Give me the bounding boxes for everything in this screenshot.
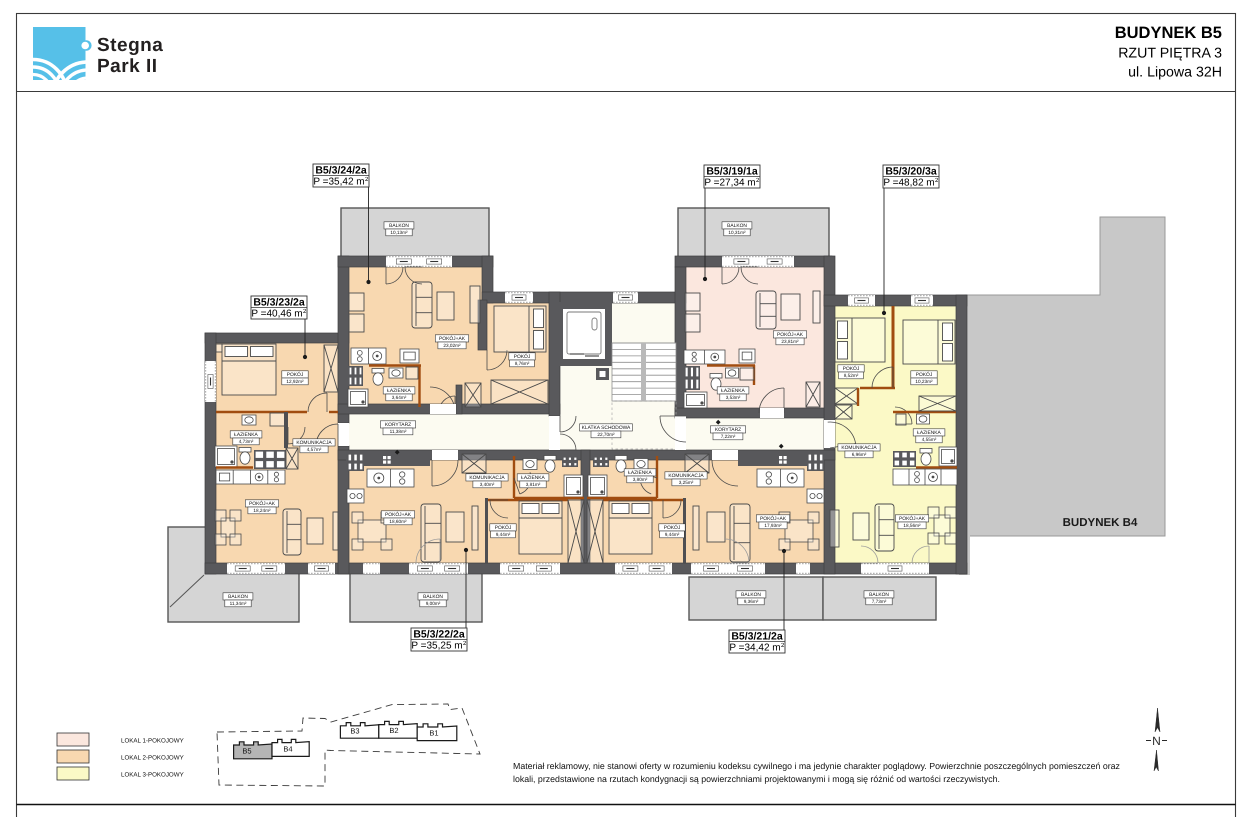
- svg-text:10,23m²: 10,23m²: [915, 379, 933, 384]
- svg-text:18,24m²: 18,24m²: [253, 508, 271, 513]
- svg-text:LOKAL 3-POKOJOWY: LOKAL 3-POKOJOWY: [121, 772, 184, 779]
- svg-text:9,44m²: 9,44m²: [496, 532, 511, 537]
- svg-text:KOMUNIKACJA: KOMUNIKACJA: [296, 440, 332, 446]
- svg-text:POKÓJ: POKÓJ: [495, 524, 512, 531]
- svg-text:POKÓJ+AK: POKÓJ+AK: [385, 511, 412, 518]
- svg-text:P =48,82 m: P =48,82 m: [883, 178, 934, 189]
- svg-text:7,22m²: 7,22m²: [721, 434, 736, 439]
- svg-text:P =35,25 m: P =35,25 m: [411, 641, 462, 652]
- svg-text:3,53m²: 3,53m²: [726, 395, 741, 400]
- svg-text:POKÓJ: POKÓJ: [514, 353, 531, 360]
- svg-text:10,13m²: 10,13m²: [390, 230, 408, 235]
- svg-text:18,56m²: 18,56m²: [903, 523, 921, 528]
- svg-text:BUDYNEK B5: BUDYNEK B5: [1115, 24, 1222, 42]
- svg-text:P =27,34 m: P =27,34 m: [704, 178, 755, 189]
- svg-text:B5/3/22/2a: B5/3/22/2a: [413, 629, 465, 641]
- svg-text:9,36m²: 9,36m²: [744, 599, 759, 604]
- svg-text:9,00m²: 9,00m²: [426, 601, 441, 606]
- svg-text:POKÓJ: POKÓJ: [664, 524, 681, 531]
- svg-text:Park II: Park II: [97, 56, 158, 77]
- svg-text:LOKAL 1-POKOJOWY: LOKAL 1-POKOJOWY: [121, 738, 184, 745]
- svg-text:ŁAZIENKA: ŁAZIENKA: [628, 470, 652, 476]
- svg-text:BALKON: BALKON: [727, 223, 747, 229]
- svg-text:23,02m²: 23,02m²: [443, 343, 461, 348]
- svg-text:B4: B4: [283, 745, 292, 754]
- svg-text:KORYTARZ: KORYTARZ: [385, 422, 411, 428]
- svg-text:POKÓJ+AK: POKÓJ+AK: [249, 500, 276, 507]
- svg-text:RZUT PIĘTRA 3: RZUT PIĘTRA 3: [1118, 46, 1222, 62]
- svg-text:12,92m²: 12,92m²: [286, 379, 304, 384]
- svg-text:BALKON: BALKON: [741, 592, 761, 598]
- svg-text:Materiał reklamowy, nie stanow: Materiał reklamowy, nie stanowi oferty w…: [513, 761, 1120, 771]
- svg-text:B5/3/24/2a: B5/3/24/2a: [315, 165, 367, 177]
- svg-text:BALKON: BALKON: [423, 594, 443, 600]
- svg-text:P =40,46 m: P =40,46 m: [251, 309, 302, 320]
- svg-text:POKÓJ: POKÓJ: [287, 371, 304, 378]
- svg-text:POKÓJ: POKÓJ: [916, 371, 933, 378]
- svg-text:7,73m²: 7,73m²: [872, 599, 887, 604]
- svg-text:B5/3/20/3a: B5/3/20/3a: [885, 166, 937, 178]
- svg-text:POKÓJ: POKÓJ: [843, 365, 860, 372]
- svg-text:ŁAZIENKA: ŁAZIENKA: [721, 388, 745, 394]
- svg-text:ŁAZIENKA: ŁAZIENKA: [917, 430, 941, 436]
- svg-text:POKÓJ+AK: POKÓJ+AK: [899, 515, 926, 522]
- svg-text:3,81m²: 3,81m²: [526, 482, 541, 487]
- svg-text:18,60m²: 18,60m²: [389, 519, 407, 524]
- svg-text:KOMUNIKACJA: KOMUNIKACJA: [469, 475, 505, 481]
- svg-text:B2: B2: [389, 726, 398, 735]
- svg-text:ŁAZIENKA: ŁAZIENKA: [234, 432, 258, 438]
- svg-text:POKÓJ+AK: POKÓJ+AK: [760, 515, 787, 522]
- svg-text:3,40m²: 3,40m²: [480, 482, 495, 487]
- svg-text:11,38m²: 11,38m²: [390, 429, 407, 434]
- svg-text:23,81m²: 23,81m²: [781, 339, 799, 344]
- svg-text:P =35,42 m: P =35,42 m: [313, 177, 364, 188]
- svg-text:B5: B5: [242, 747, 251, 756]
- svg-text:3,64m²: 3,64m²: [392, 395, 407, 400]
- svg-text:22,70m²: 22,70m²: [597, 432, 615, 437]
- svg-text:B3: B3: [350, 727, 359, 736]
- svg-text:9,44m²: 9,44m²: [665, 532, 680, 537]
- svg-text:BALKON: BALKON: [389, 223, 409, 229]
- svg-text:P =34,42 m: P =34,42 m: [729, 643, 780, 654]
- svg-text:8,52m²: 8,52m²: [844, 373, 859, 378]
- svg-text:4,55m²: 4,55m²: [922, 437, 937, 442]
- svg-text:11,34m²: 11,34m²: [230, 601, 247, 606]
- svg-text:LOKAL 2-POKOJOWY: LOKAL 2-POKOJOWY: [121, 755, 184, 762]
- svg-text:B5/3/21/2a: B5/3/21/2a: [731, 631, 783, 643]
- svg-text:3,25m²: 3,25m²: [679, 480, 694, 485]
- svg-text:3,80m²: 3,80m²: [633, 477, 648, 482]
- svg-text:ŁAZIENKA: ŁAZIENKA: [387, 388, 411, 394]
- svg-text:B1: B1: [429, 729, 438, 738]
- svg-text:N: N: [1152, 734, 1161, 748]
- svg-text:KOMUNIKACJA: KOMUNIKACJA: [841, 445, 877, 451]
- svg-text:BALKON: BALKON: [869, 592, 889, 598]
- svg-text:10,31m²: 10,31m²: [728, 230, 746, 235]
- svg-text:4,73m²: 4,73m²: [239, 439, 254, 444]
- svg-text:6,96m²: 6,96m²: [852, 452, 867, 457]
- svg-text:KORYTARZ: KORYTARZ: [715, 427, 741, 433]
- svg-text:ŁAZIENKA: ŁAZIENKA: [521, 475, 545, 481]
- svg-text:4,57m²: 4,57m²: [307, 447, 322, 452]
- svg-text:B5/3/19/1a: B5/3/19/1a: [706, 166, 758, 178]
- svg-text:KLATKA SCHODOWA: KLATKA SCHODOWA: [582, 425, 631, 431]
- svg-text:BALKON: BALKON: [228, 594, 248, 600]
- svg-text:Stegna: Stegna: [97, 35, 163, 56]
- svg-text:17,93m²: 17,93m²: [764, 523, 782, 528]
- svg-text:KOMUNIKACJA: KOMUNIKACJA: [668, 473, 704, 479]
- svg-text:POKÓJ+AK: POKÓJ+AK: [777, 331, 804, 338]
- svg-text:POKÓJ+AK: POKÓJ+AK: [439, 335, 466, 342]
- svg-text:ul. Lipowa 32H: ul. Lipowa 32H: [1128, 65, 1222, 81]
- svg-text:lokali, przedstawione na rzuta: lokali, przedstawione na rzutach kondygn…: [513, 774, 1000, 784]
- svg-text:B5/3/23/2a: B5/3/23/2a: [253, 297, 305, 309]
- svg-text:8,76m²: 8,76m²: [515, 361, 530, 366]
- svg-text:BUDYNEK B4: BUDYNEK B4: [1063, 517, 1138, 529]
